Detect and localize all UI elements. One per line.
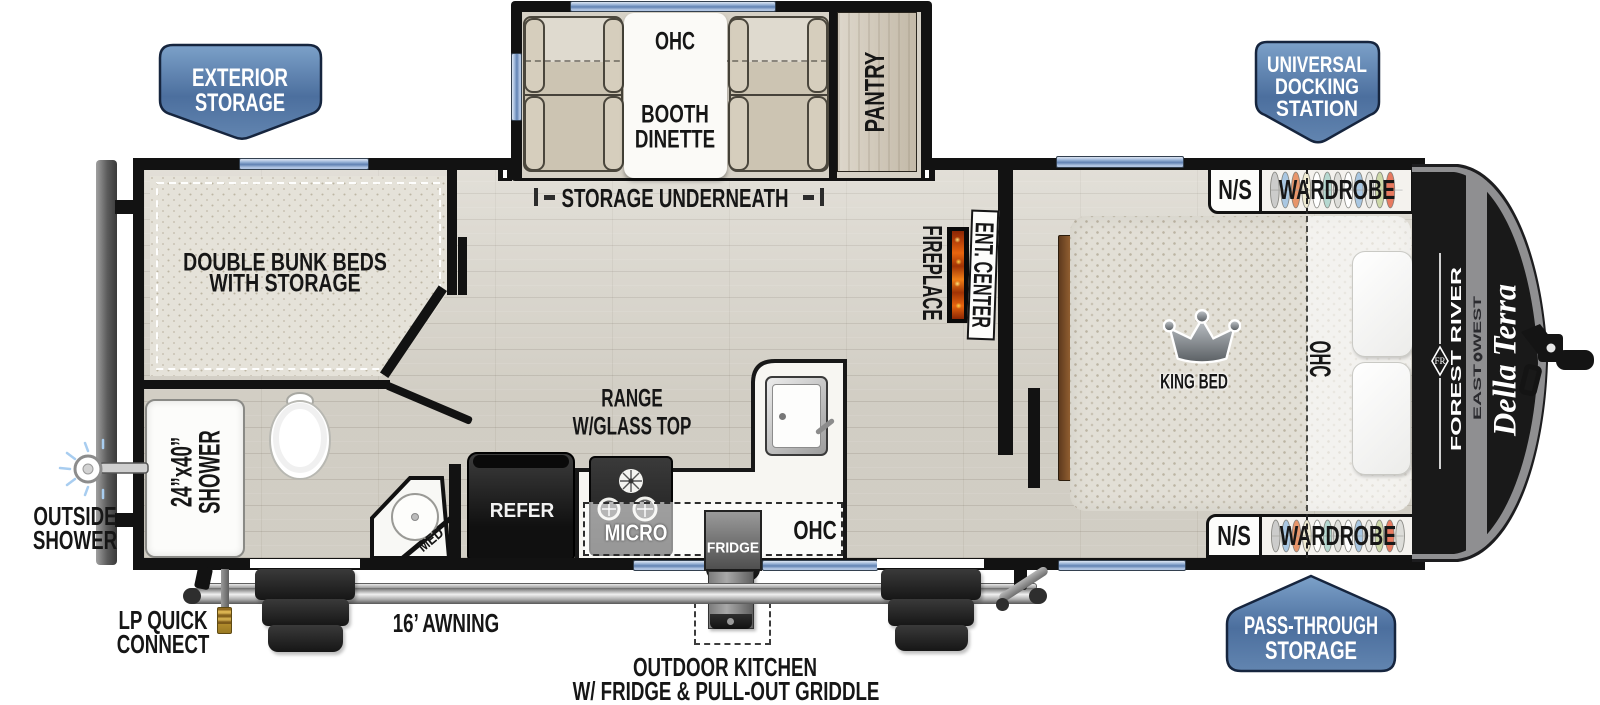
svg-text:FOREST RIVER: FOREST RIVER: [1448, 267, 1465, 451]
svg-text:STATION: STATION: [1276, 96, 1358, 121]
svg-text:EAST: EAST: [1472, 363, 1484, 420]
svg-text:EXTERIOR: EXTERIOR: [192, 64, 288, 92]
svg-text:Della Terra: Della Terra: [1488, 284, 1524, 437]
svg-text:WEST: WEST: [1472, 296, 1484, 352]
svg-text:STORAGE: STORAGE: [195, 89, 285, 117]
svg-text:STORAGE: STORAGE: [1265, 637, 1357, 665]
svg-text:FR: FR: [1434, 356, 1445, 366]
svg-text:PASS-THROUGH: PASS-THROUGH: [1244, 612, 1378, 640]
